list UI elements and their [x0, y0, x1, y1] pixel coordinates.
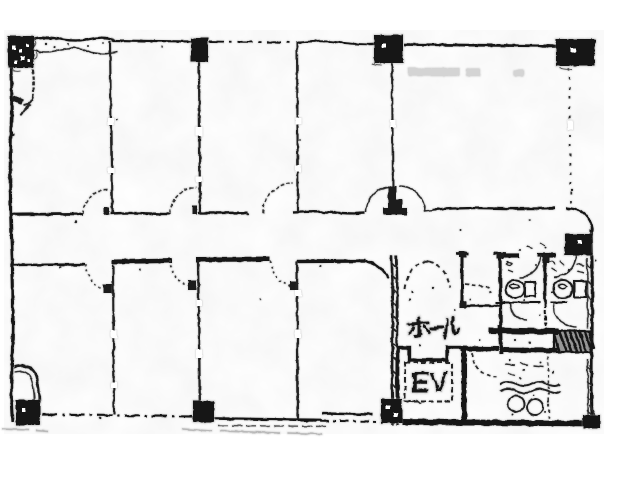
- svg-text:EV: EV: [411, 367, 448, 400]
